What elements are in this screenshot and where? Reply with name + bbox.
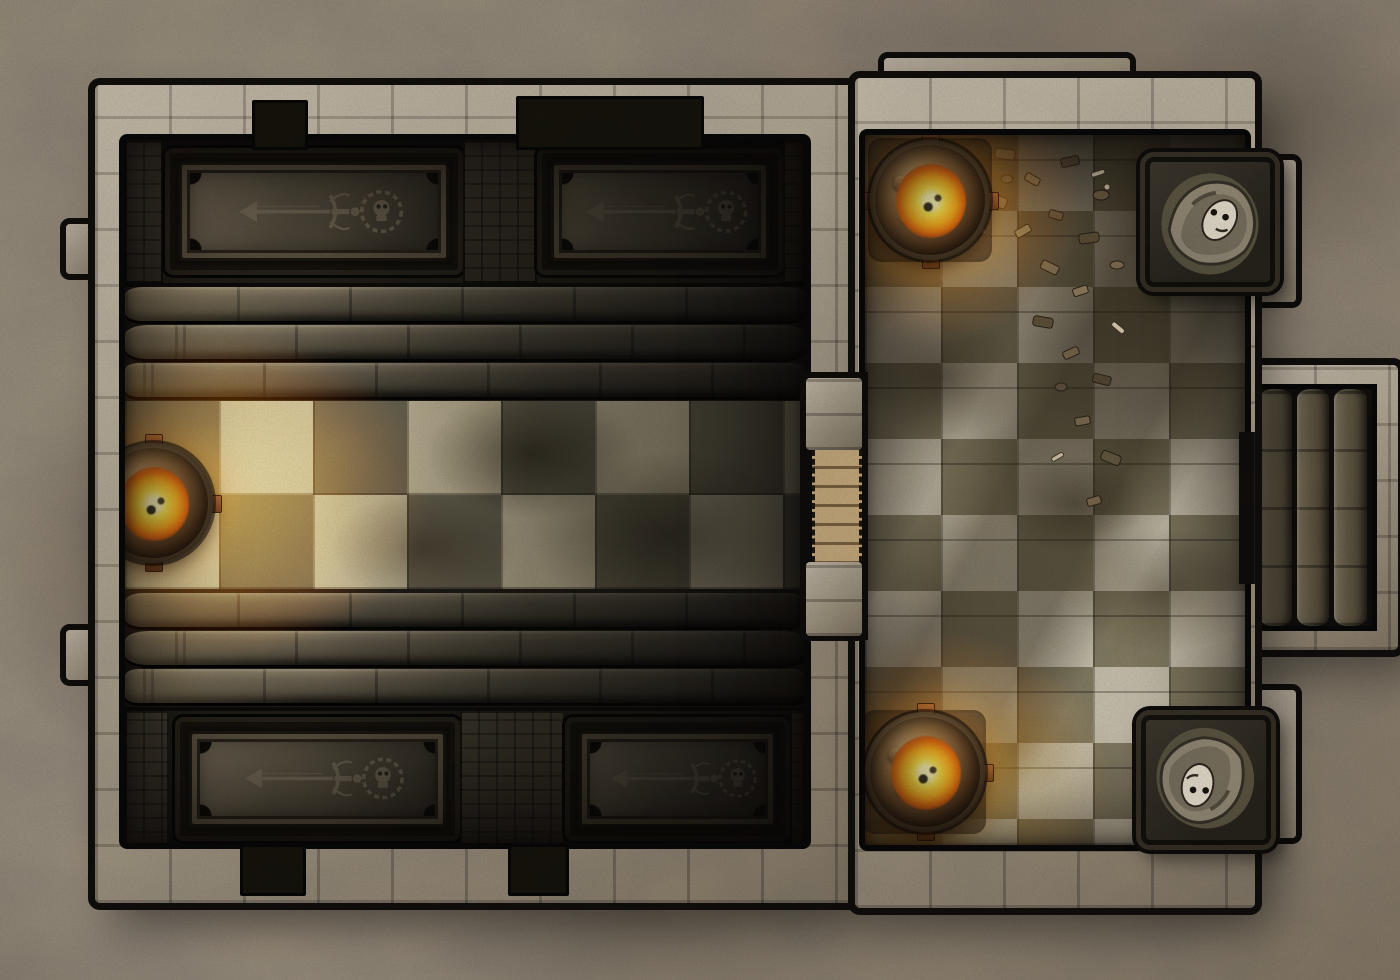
brazier-bowl: [865, 712, 985, 832]
wall-bump-west-upper: [66, 224, 98, 274]
fire-icon: [125, 467, 189, 541]
statue-southeast[interactable]: [1136, 710, 1276, 850]
door-jamb-stone: [806, 378, 862, 450]
alcove-band-north: [125, 140, 805, 287]
sword-wreath-engraving-icon: [566, 175, 753, 248]
sword-wreath-engraving-icon: [198, 175, 430, 248]
wooden-plank-door[interactable]: [812, 450, 862, 562]
wall-niche-north-wide: [516, 96, 704, 150]
stair-step: [1259, 389, 1292, 626]
sarcophagus-lid: [579, 731, 776, 827]
stairs-passage-floor: [1254, 389, 1372, 626]
step-row: [125, 363, 805, 397]
stair-doorway-opening: [1239, 432, 1263, 584]
mosaic-pier: [783, 140, 805, 283]
crypt-hall-floor: [125, 140, 805, 843]
step-row: [125, 325, 805, 359]
sarcophagus-north[interactable]: [537, 148, 783, 275]
brazier-bowl: [870, 140, 990, 260]
fire-icon: [891, 736, 961, 810]
sarcophagus-lid: [179, 162, 449, 261]
sarcophagus-northwest[interactable]: [165, 148, 463, 275]
steps-south: [125, 589, 805, 711]
wall-niche-south: [508, 844, 569, 896]
checkered-aisle: [125, 401, 805, 589]
step-row: [125, 669, 805, 703]
door-jamb-stone: [806, 562, 862, 636]
stairs-east[interactable]: [1240, 365, 1398, 650]
brazier-west[interactable]: [125, 437, 219, 569]
fire-icon: [896, 164, 966, 238]
room-crypt-hall: [95, 85, 855, 903]
mosaic-pier: [125, 140, 163, 283]
stair-step: [1334, 389, 1367, 626]
step-row: [125, 631, 805, 665]
step-row: [125, 593, 805, 627]
stair-step: [1297, 389, 1330, 626]
sarcophagus-south[interactable]: [565, 717, 790, 841]
wall-bump-west-lower: [66, 630, 98, 680]
wall-niche-north: [252, 100, 308, 150]
hooded-statue-figure: [1142, 154, 1278, 290]
sword-wreath-engraving-icon: [593, 743, 762, 814]
steps-north: [125, 283, 805, 405]
mosaic-pier: [463, 140, 537, 283]
hooded-statue-figure: [1119, 693, 1293, 867]
dungeon-map: [0, 0, 1400, 980]
statue-northeast[interactable]: [1140, 152, 1280, 292]
mosaic-pier: [125, 711, 169, 843]
step-row: [125, 287, 805, 321]
brazier-bowl: [125, 443, 213, 563]
alcove-band-south: [125, 707, 805, 843]
mosaic-pier: [460, 711, 565, 843]
sword-wreath-engraving-icon: [207, 743, 428, 814]
brazier-north[interactable]: [865, 135, 996, 266]
sarcophagus-southwest[interactable]: [175, 717, 460, 841]
mosaic-pier: [790, 711, 805, 843]
brazier-south[interactable]: [865, 706, 991, 838]
sarcophagus-lid: [189, 731, 446, 827]
wall-niche-south: [240, 844, 306, 896]
sarcophagus-lid: [551, 162, 769, 261]
